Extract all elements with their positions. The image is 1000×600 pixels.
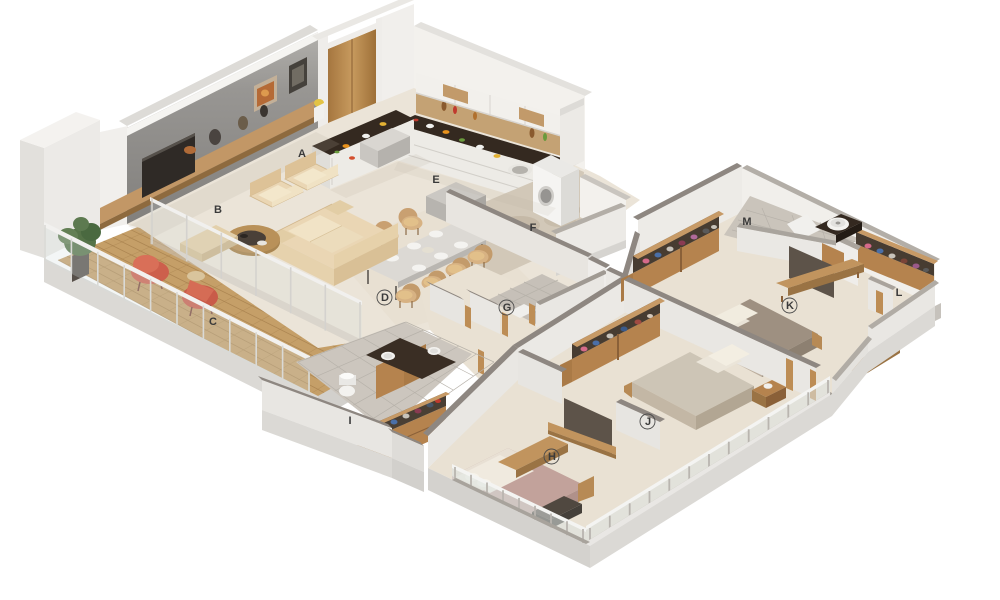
svg-text:H: H <box>548 451 556 463</box>
svg-text:A: A <box>298 148 306 160</box>
svg-text:K: K <box>786 300 794 312</box>
svg-text:B: B <box>214 204 222 216</box>
svg-text:C: C <box>209 316 217 328</box>
svg-text:F: F <box>530 222 537 234</box>
svg-text:J: J <box>645 416 651 428</box>
svg-text:M: M <box>742 216 751 228</box>
svg-text:E: E <box>432 174 439 186</box>
svg-text:L: L <box>896 287 903 299</box>
svg-text:D: D <box>381 292 389 304</box>
svg-text:G: G <box>503 302 512 314</box>
svg-text:I: I <box>348 415 351 427</box>
